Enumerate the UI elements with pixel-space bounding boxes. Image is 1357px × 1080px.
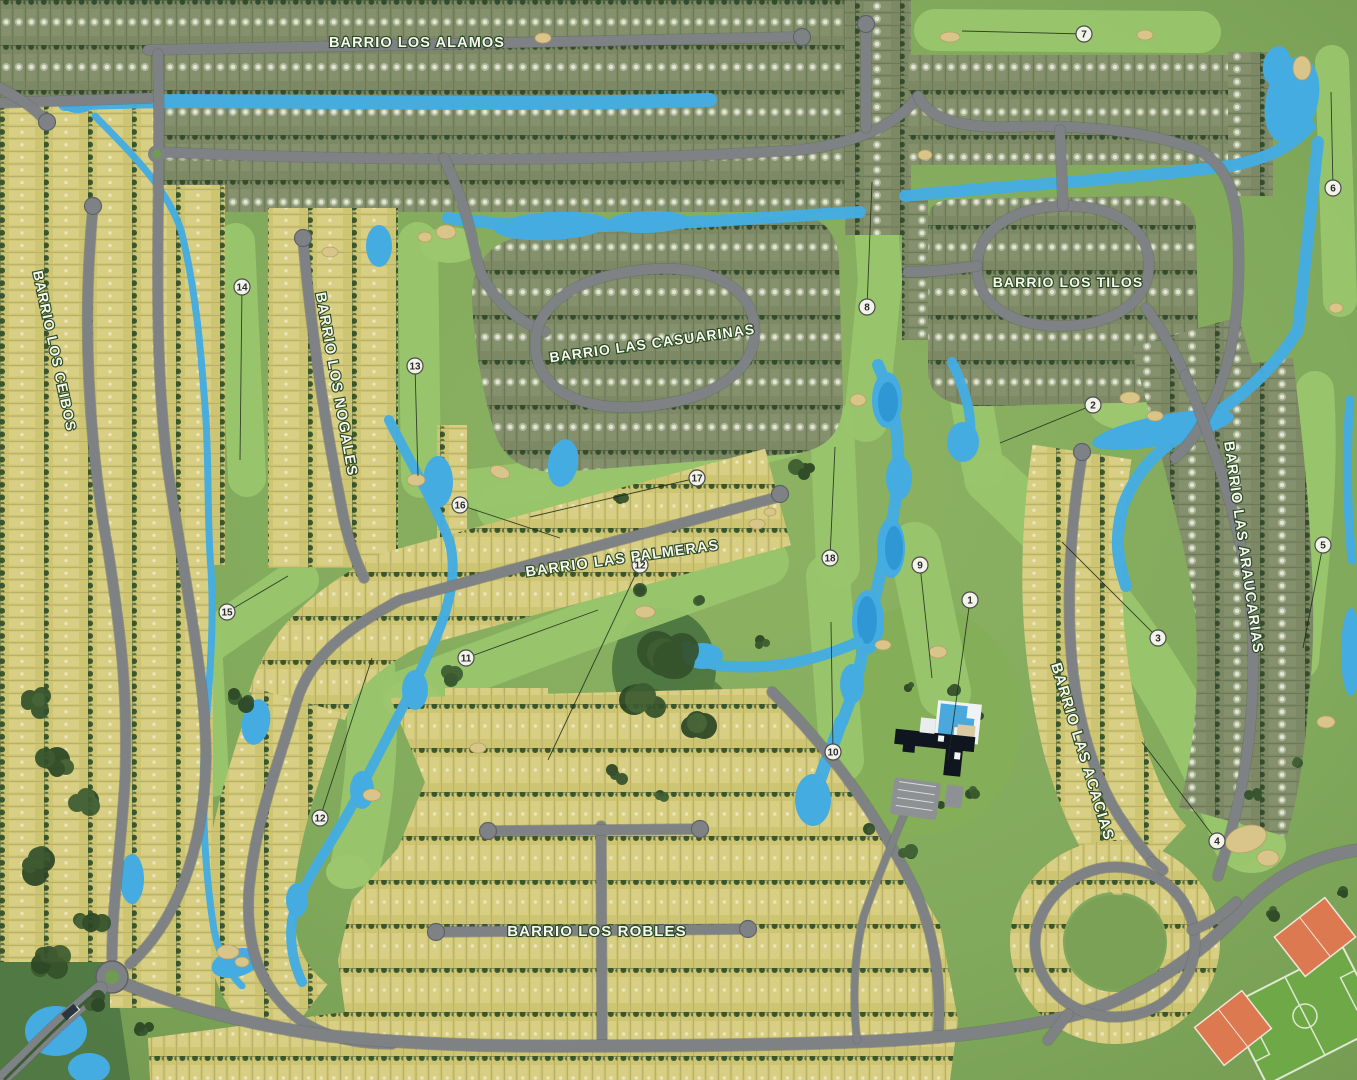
svg-text:12: 12 [314,814,326,825]
svg-text:4: 4 [1214,837,1220,848]
svg-text:2: 2 [1090,401,1096,412]
svg-text:5: 5 [1320,541,1326,552]
svg-text:8: 8 [864,303,870,314]
svg-text:9: 9 [917,561,923,572]
svg-text:10: 10 [827,748,839,759]
svg-text:18: 18 [824,554,836,565]
svg-text:7: 7 [1081,30,1087,41]
svg-text:14: 14 [236,283,248,294]
svg-text:BARRIO LOS ROBLES: BARRIO LOS ROBLES [507,923,687,940]
svg-text:16: 16 [454,501,466,512]
svg-text:3: 3 [1155,634,1161,645]
svg-text:13: 13 [409,362,421,373]
svg-text:15: 15 [221,608,233,619]
svg-text:6: 6 [1330,184,1336,195]
svg-text:BARRIO LOS ALAMOS: BARRIO LOS ALAMOS [329,35,505,51]
svg-text:11: 11 [461,654,472,665]
svg-text:BARRIO LOS TILOS: BARRIO LOS TILOS [993,274,1144,290]
svg-text:1: 1 [967,596,973,607]
svg-text:17: 17 [691,474,703,485]
